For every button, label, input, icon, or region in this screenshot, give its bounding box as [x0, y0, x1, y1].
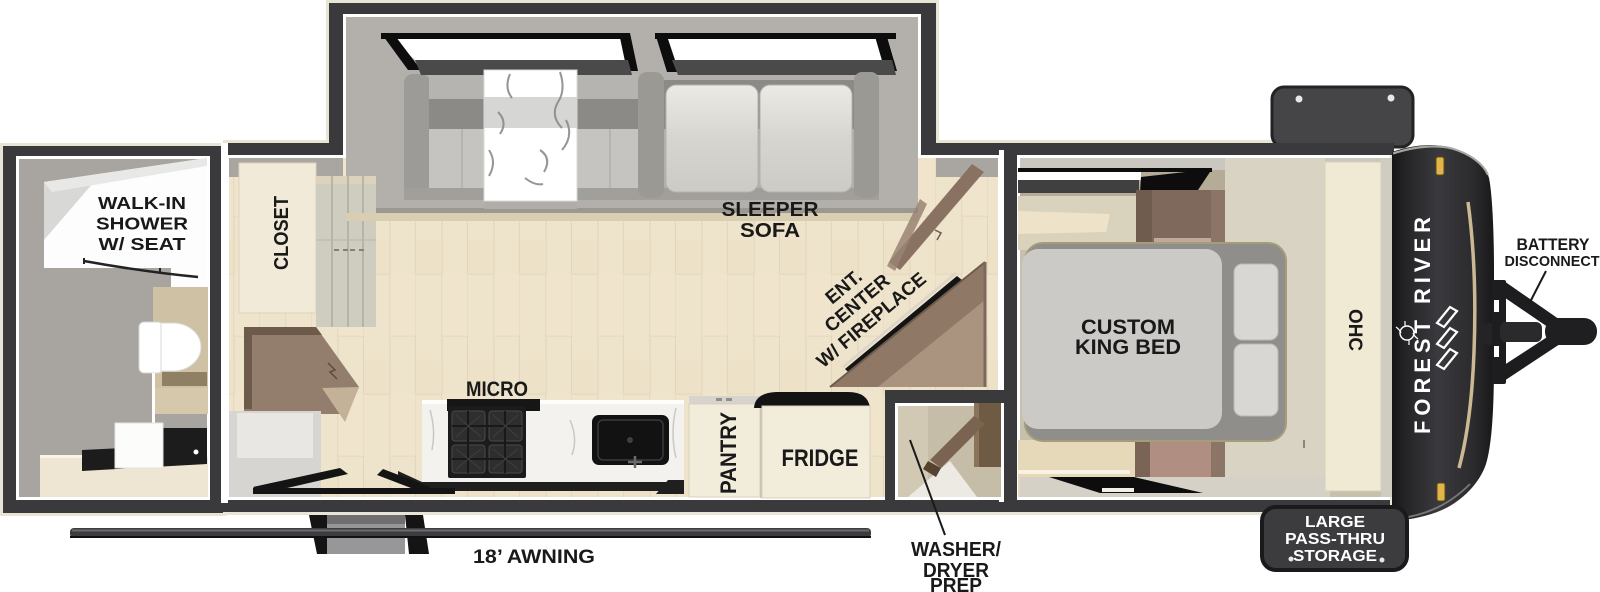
svg-text:MICRO: MICRO: [466, 377, 528, 401]
svg-text:SOFA: SOFA: [740, 220, 800, 242]
svg-text:WALK-IN: WALK-IN: [98, 193, 186, 213]
svg-text:W/ SEAT: W/ SEAT: [99, 234, 186, 254]
svg-text:STORAGE: STORAGE: [1293, 548, 1377, 565]
svg-text:DISCONNECT: DISCONNECT: [1505, 253, 1600, 270]
svg-text:PANTRY: PANTRY: [716, 412, 741, 494]
svg-text:PREP: PREP: [930, 575, 982, 592]
svg-text:KING BED: KING BED: [1075, 336, 1181, 359]
svg-text:LARGE: LARGE: [1305, 514, 1365, 531]
svg-text:WASHER/: WASHER/: [911, 539, 1001, 561]
svg-text:PASS-THRU: PASS-THRU: [1285, 531, 1385, 548]
svg-text:BATTERY: BATTERY: [1517, 236, 1590, 254]
svg-text:18’ AWNING: 18’ AWNING: [473, 546, 595, 568]
svg-text:FRIDGE: FRIDGE: [782, 445, 859, 472]
svg-text:CLOSET: CLOSET: [271, 196, 293, 270]
svg-text:SLEEPER: SLEEPER: [722, 199, 820, 221]
svg-text:OHC: OHC: [1344, 309, 1365, 351]
svg-text:SHOWER: SHOWER: [96, 214, 188, 234]
svg-text:FOREST RIVER: FOREST RIVER: [1410, 214, 1435, 434]
